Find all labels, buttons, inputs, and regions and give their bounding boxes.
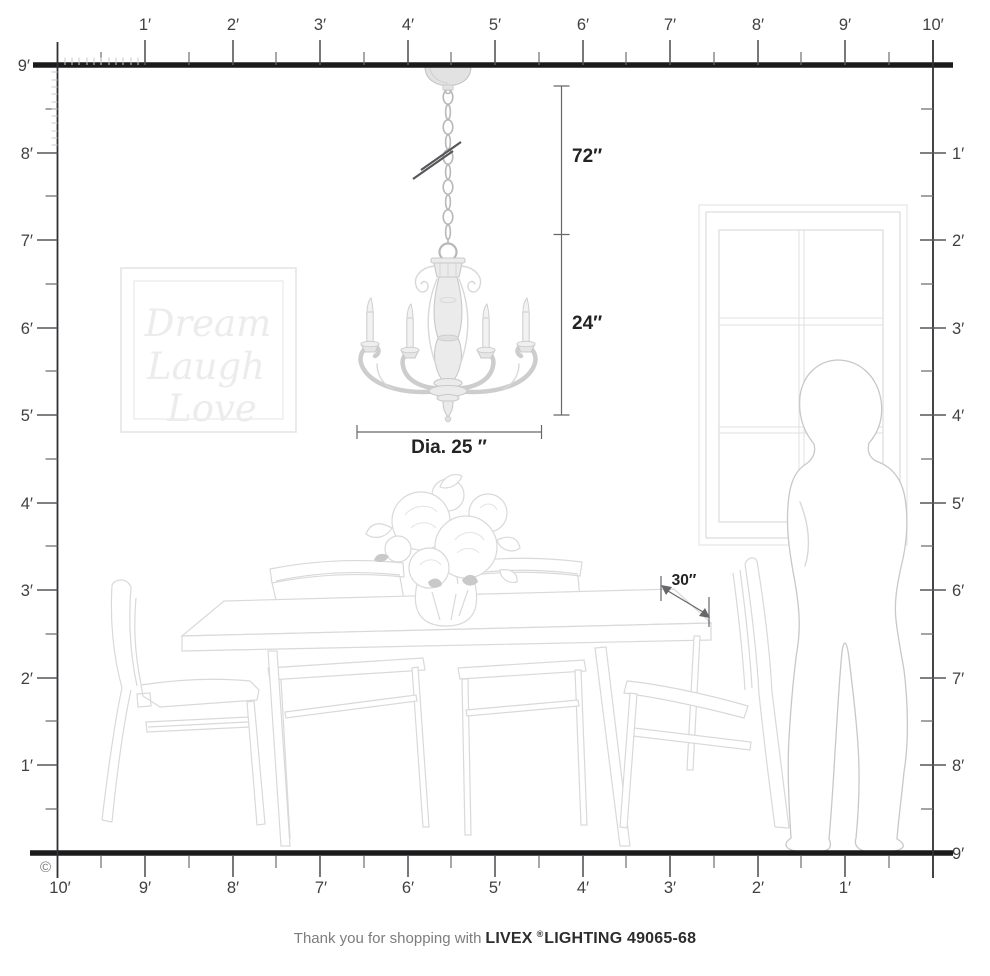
top-ruler-label: 8′ (752, 16, 764, 34)
top-ruler-label: 9′ (839, 16, 851, 34)
wall-art-line2: Laugh (146, 345, 265, 388)
top-ruler-label: 6′ (577, 16, 589, 34)
bottom-ruler-label: 3′ (664, 879, 676, 897)
right-ruler-label: 5′ (952, 495, 964, 513)
bottom-ruler-label: 4′ (577, 879, 589, 897)
left-ruler-label: 5′ (21, 407, 33, 425)
footer-brand: LIVEX (485, 930, 532, 947)
left-ruler-label: 4′ (21, 495, 33, 513)
scale-diagram: Dream Laugh Love (0, 0, 990, 976)
chandelier-canopy (425, 66, 471, 90)
right-ruler-label: 2′ (952, 232, 964, 250)
left-ruler-label: 9′ (18, 57, 30, 75)
top-ruler: 1′ 2′ 3′ 4′ 5′ 6′ 7′ 8′ 9′ 10′ (139, 16, 944, 34)
dimension-chain-overall: 72″ (572, 146, 602, 167)
bottom-ruler-label: 1′ (839, 879, 851, 897)
chain-break-mark (413, 142, 461, 179)
left-ruler-label: 7′ (21, 232, 33, 250)
bottom-ruler-label: 10′ (49, 879, 70, 897)
wall-art-line1: Dream (144, 302, 271, 345)
registered-trademark-icon: ® (537, 929, 544, 939)
bottom-ruler-label: 5′ (489, 879, 501, 897)
top-ruler-label: 4′ (402, 16, 414, 34)
right-ruler-label: 6′ (952, 582, 964, 600)
product-scale-diagram-page: Dream Laugh Love (0, 0, 990, 976)
top-ruler-label: 10′ (922, 16, 943, 34)
candle (477, 304, 495, 358)
top-ruler-label: 1′ (139, 16, 151, 34)
bottom-ruler-label: 6′ (402, 879, 414, 897)
bottom-ruler: 10′ 9′ 8′ 7′ 6′ 5′ 4′ 3′ 2′ 1′ (49, 879, 851, 897)
top-ruler-label: 5′ (489, 16, 501, 34)
left-ruler: 9′ 8′ 7′ 6′ 5′ 4′ 3′ 2′ 1′ (18, 57, 33, 775)
left-ruler-label: 6′ (21, 320, 33, 338)
right-ruler-label: 1′ (952, 145, 964, 163)
top-ruler-label: 3′ (314, 16, 326, 34)
wall-art-frame: Dream Laugh Love (121, 268, 296, 432)
left-ruler-label: 3′ (21, 582, 33, 600)
right-ruler-label: 4′ (952, 407, 964, 425)
bottom-ruler-label: 2′ (752, 879, 764, 897)
left-ruler-label: 2′ (21, 670, 33, 688)
candle (361, 298, 379, 352)
top-ruler-label: 2′ (227, 16, 239, 34)
wall-art-line3: Love (166, 387, 257, 430)
right-ruler-label: 8′ (952, 757, 964, 775)
footer-thanks-text: Thank you for shopping with (294, 930, 482, 947)
left-ruler-label: 1′ (21, 757, 33, 775)
chandelier-body (361, 258, 536, 422)
copyright-mark: © (40, 859, 51, 876)
right-ruler-label: 7′ (952, 670, 964, 688)
right-ruler-label: 3′ (952, 320, 964, 338)
footer: Thank you for shopping withLIVEX®LIGHTIN… (0, 929, 990, 948)
dimension-fixture-diameter: Dia. 25 ″ (411, 437, 487, 458)
bottom-ruler-label: 8′ (227, 879, 239, 897)
bottom-ruler-label: 9′ (139, 879, 151, 897)
left-ruler-label: 8′ (21, 145, 33, 163)
chandelier (361, 66, 536, 422)
right-ruler-label: 9′ (952, 845, 964, 863)
bottom-ruler-label: 7′ (315, 879, 327, 897)
candle (401, 304, 419, 358)
dimension-fixture-height: 24″ (572, 313, 602, 334)
top-ruler-label: 7′ (664, 16, 676, 34)
chandelier-chain (440, 89, 457, 261)
footer-product-sku: LIGHTING 49065-68 (544, 930, 696, 947)
right-ruler: 1′ 2′ 3′ 4′ 5′ 6′ 7′ 8′ 9′ (952, 145, 964, 863)
dimension-table-depth: 30″ (672, 572, 697, 589)
candle (517, 298, 535, 352)
